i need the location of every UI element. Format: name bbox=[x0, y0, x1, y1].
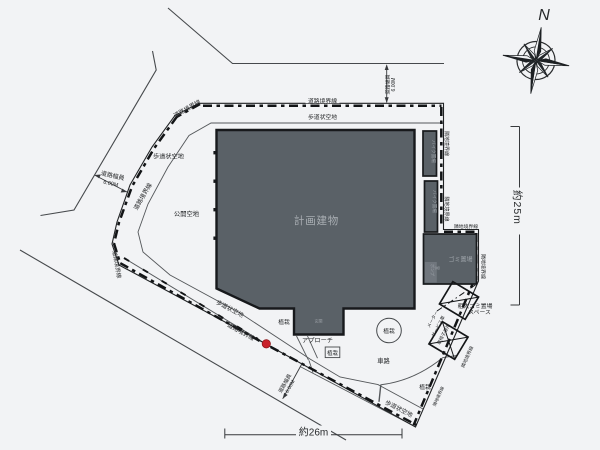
svg-text:室: 室 bbox=[435, 266, 441, 270]
svg-text:隣地境界線: 隣地境界線 bbox=[480, 254, 487, 279]
svg-text:公開空地: 公開空地 bbox=[174, 209, 200, 218]
svg-text:ゴミ置場: ゴミ置場 bbox=[448, 256, 472, 264]
svg-text:約26m: 約26m bbox=[299, 426, 328, 439]
svg-text:6.00M: 6.00M bbox=[391, 78, 397, 92]
svg-text:隣地境界線: 隣地境界線 bbox=[443, 197, 450, 222]
svg-text:歩道状空地: 歩道状空地 bbox=[153, 153, 184, 161]
svg-text:アプローチ: アプローチ bbox=[302, 338, 333, 345]
svg-text:玄関: 玄関 bbox=[315, 318, 323, 324]
svg-text:スペース: スペース bbox=[468, 309, 491, 316]
svg-text:隣地境界線: 隣地境界線 bbox=[443, 131, 450, 156]
svg-text:バイク置場: バイク置場 bbox=[430, 140, 437, 163]
svg-text:計画建物: 計画建物 bbox=[294, 214, 339, 227]
svg-text:バイク置場: バイク置場 bbox=[431, 190, 438, 213]
svg-text:隣地境界線: 隣地境界線 bbox=[454, 223, 478, 230]
svg-text:植栽: 植栽 bbox=[383, 327, 395, 335]
svg-text:約25m: 約25m bbox=[511, 190, 524, 225]
svg-text:N: N bbox=[538, 7, 550, 24]
svg-text:道路境界線: 道路境界線 bbox=[308, 97, 337, 105]
svg-text:歩道状空地: 歩道状空地 bbox=[308, 113, 337, 121]
svg-text:植栽: 植栽 bbox=[327, 349, 338, 357]
svg-text:車路: 車路 bbox=[377, 356, 390, 365]
svg-text:粗大ゴミ置場: 粗大ゴミ置場 bbox=[458, 302, 493, 310]
svg-text:植栽: 植栽 bbox=[419, 383, 431, 391]
svg-text:植栽: 植栽 bbox=[278, 318, 290, 326]
